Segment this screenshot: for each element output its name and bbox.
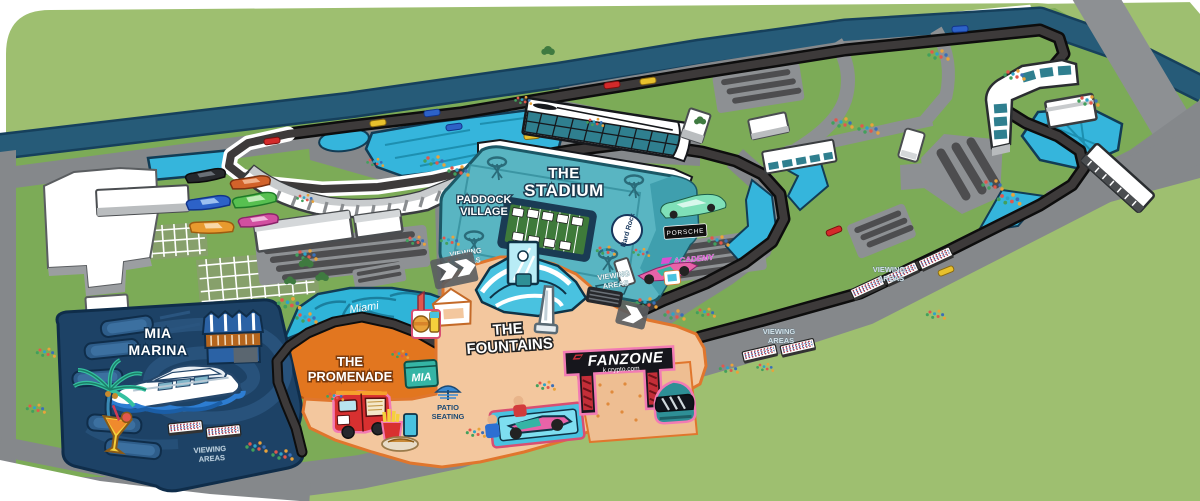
svg-text:STADIUM: STADIUM <box>524 181 604 200</box>
svg-text:THE: THE <box>548 165 580 182</box>
svg-text:PROMENADE: PROMENADE <box>308 369 393 384</box>
svg-text:VIEWING: VIEWING <box>873 265 906 274</box>
svg-text:VIEWING: VIEWING <box>763 327 796 336</box>
svg-text:AREAS: AREAS <box>768 336 794 345</box>
svg-text:SEATING: SEATING <box>432 412 465 421</box>
svg-text:AREAS: AREAS <box>878 274 904 283</box>
svg-text:PATIO: PATIO <box>437 403 459 412</box>
svg-text:MIA: MIA <box>144 325 171 341</box>
svg-text:THE: THE <box>492 320 523 339</box>
svg-text:VILLAGE: VILLAGE <box>460 206 508 218</box>
svg-text:AREAS: AREAS <box>198 453 225 464</box>
svg-text:MIA: MIA <box>411 371 432 384</box>
svg-text:THE: THE <box>337 354 363 369</box>
svg-text:MARINA: MARINA <box>129 342 188 358</box>
svg-text:PADDOCK: PADDOCK <box>457 194 512 206</box>
